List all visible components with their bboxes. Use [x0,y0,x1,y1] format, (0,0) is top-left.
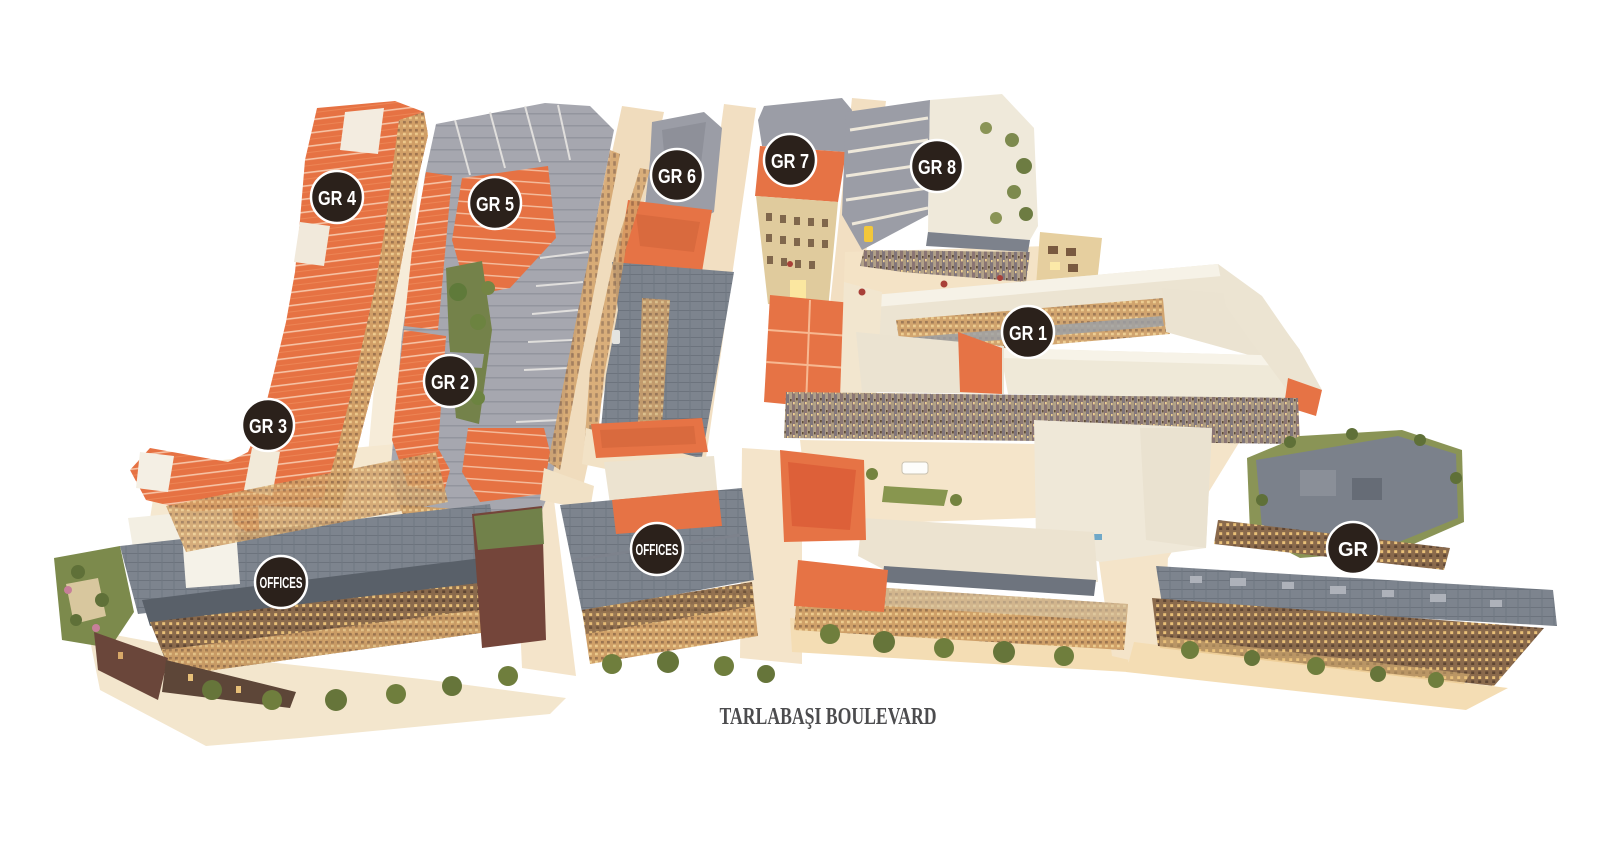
svg-text:OFFICES: OFFICES [260,575,303,592]
svg-text:TARLABAŞI BOULEVARD: TARLABAŞI BOULEVARD [720,704,937,730]
svg-text:GR 5: GR 5 [476,194,514,216]
svg-text:GR 8: GR 8 [918,157,956,179]
svg-text:GR 7: GR 7 [771,151,809,173]
svg-text:OFFICES: OFFICES [636,542,679,559]
svg-text:GR 1: GR 1 [1009,323,1047,345]
svg-text:GR: GR [1338,539,1369,561]
svg-text:GR 3: GR 3 [249,416,287,438]
svg-text:GR 4: GR 4 [318,188,357,210]
svg-text:GR 2: GR 2 [431,372,469,394]
svg-text:GR 6: GR 6 [658,166,696,188]
